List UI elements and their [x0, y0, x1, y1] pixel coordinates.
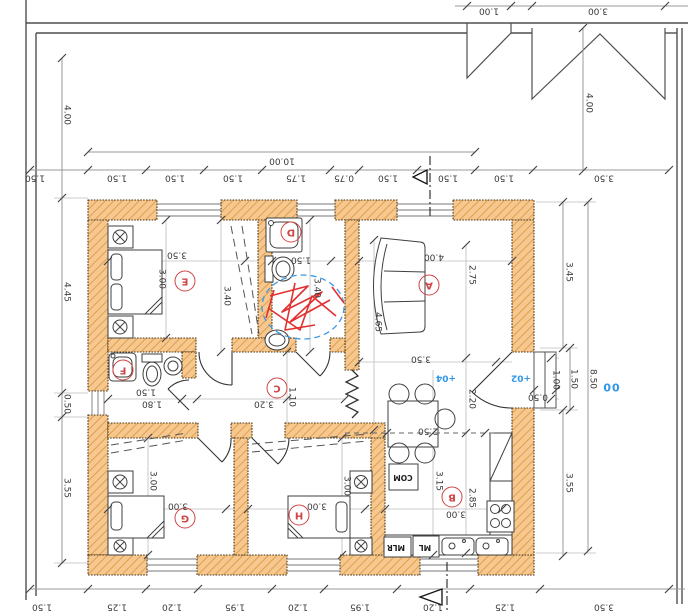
- dim-label: 3.45: [564, 262, 573, 282]
- dim-label: 1.20: [423, 602, 443, 611]
- dim-label: 1.50: [136, 387, 156, 396]
- room-tag-f: F: [113, 360, 134, 381]
- dim-label: 3.55: [564, 473, 573, 493]
- dim-label: 3.50: [167, 250, 187, 259]
- dim-label: 1.10: [287, 387, 296, 407]
- dim-label: 3.00: [157, 269, 166, 289]
- dim-label: 1.50: [291, 255, 311, 264]
- dim-label: 1.50: [438, 173, 458, 182]
- dim-label: 1.00: [551, 370, 560, 390]
- sink-basin: [476, 538, 508, 555]
- markup-annotation: [262, 275, 344, 339]
- dim-label: 3.50: [411, 354, 431, 363]
- dim-label: 1.75: [286, 173, 306, 182]
- dim-label: 1.80: [142, 399, 162, 408]
- room-tag-e: E: [175, 271, 196, 292]
- dim-label: 2.85: [467, 488, 476, 508]
- dim-label: 3.50: [594, 173, 614, 182]
- room-tag-b: B: [442, 487, 463, 508]
- dim-label: 1.95: [225, 602, 245, 611]
- dim-label: 3.00: [588, 6, 608, 15]
- dim-label: 4.00: [62, 105, 71, 125]
- red-scribble: [266, 283, 344, 330]
- dim-label: 3.40: [312, 278, 321, 298]
- dim-label: 1.20: [288, 602, 308, 611]
- annotation-circle: [262, 275, 344, 339]
- dim-label: 4.65: [373, 312, 382, 332]
- dim-label: 1.50: [25, 173, 45, 182]
- dim-label: 0.50: [62, 394, 71, 414]
- dim-label: 1.00: [479, 6, 499, 15]
- dim-label: 3.00: [446, 509, 466, 518]
- appliance-label-com: COM: [393, 473, 412, 481]
- toilet-tank: [142, 354, 162, 362]
- room-tag-d: D: [281, 222, 302, 243]
- level-marker: +02: [511, 373, 531, 382]
- dim-label: 1.50: [32, 602, 52, 611]
- sink-basin: [442, 538, 474, 555]
- level-marker: +04: [436, 373, 456, 382]
- dim-label-total: 10.00: [269, 156, 295, 165]
- porch-gable-shapes: [467, 23, 665, 99]
- dim-label: 2.20: [467, 389, 476, 409]
- stove: [487, 501, 514, 532]
- dining-table: [388, 401, 438, 447]
- dim-label: 2.50: [418, 426, 438, 435]
- dim-label: 3.00: [342, 476, 351, 496]
- floorplan-canvas: A B C D E F G H 1.00 3.00 10.00 1.50 1.5…: [0, 0, 688, 616]
- appliance-label-ml: ML: [419, 543, 431, 551]
- dim-label: 1.50: [378, 173, 398, 182]
- dim-label: 3.55: [62, 478, 71, 498]
- dim-label: 0.50: [528, 392, 548, 401]
- dim-label: 1.50: [494, 173, 514, 182]
- dim-label: 1.50: [223, 173, 243, 182]
- dim-label: 2.75: [467, 265, 476, 285]
- room-tag-g: G: [175, 508, 196, 529]
- dim-label: 1.50: [107, 173, 127, 182]
- dim-label: 3.50: [594, 602, 614, 611]
- dim-label: 3.20: [254, 399, 274, 408]
- dim-label: 3.00: [307, 501, 327, 510]
- dim-label: 1.25: [107, 602, 127, 611]
- dim-label: 1.50: [165, 173, 185, 182]
- appliance-label-mlr: MLR: [387, 543, 405, 551]
- dim-label: 3.40: [222, 286, 231, 306]
- room-tag-a: A: [419, 275, 440, 296]
- dim-label: 1.95: [350, 602, 370, 611]
- dim-label: 1.20: [162, 602, 182, 611]
- dim-label: 3.15: [434, 471, 443, 491]
- dim-label: 3.00: [168, 501, 188, 510]
- dim-label: 4.45: [62, 282, 71, 302]
- level-marker: 00: [602, 382, 619, 393]
- dim-label: 4.00: [584, 93, 593, 113]
- dim-label: 1.50: [569, 369, 578, 389]
- dim-label: 1.25: [495, 602, 515, 611]
- door-arcs: [168, 352, 512, 464]
- radiator-zigzag: [346, 370, 358, 418]
- room-tag-c: C: [267, 378, 288, 399]
- dim-label: 0.75: [334, 173, 354, 182]
- dim-label: 8.50: [588, 369, 597, 389]
- dim-label: 3.00: [148, 471, 157, 491]
- dim-label: 4.00: [424, 252, 444, 261]
